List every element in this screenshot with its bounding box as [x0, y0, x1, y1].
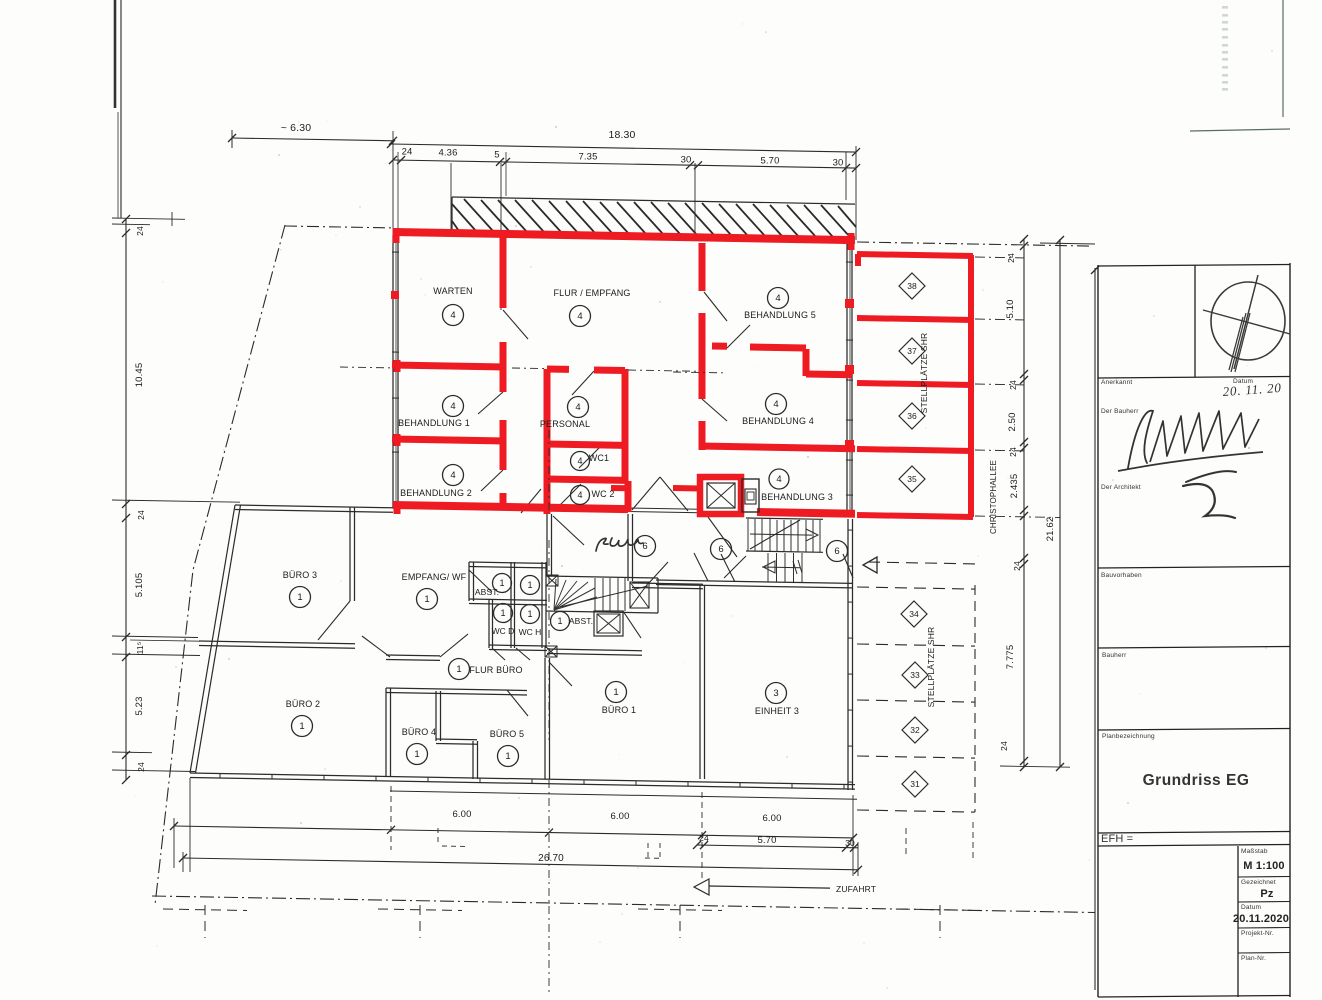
svg-text:1: 1: [424, 594, 429, 605]
svg-text:35: 35: [907, 474, 917, 484]
svg-text:BEHANDLUNG 3: BEHANDLUNG 3: [761, 492, 833, 502]
svg-text:Pz: Pz: [1260, 888, 1273, 900]
svg-text:1: 1: [505, 751, 510, 762]
svg-text:1: 1: [499, 578, 504, 588]
svg-text:2.435: 2.435: [1009, 474, 1020, 499]
svg-text:1: 1: [456, 664, 461, 675]
svg-text:2.50: 2.50: [1007, 412, 1018, 431]
svg-text:EMPFANG/ WF: EMPFANG/ WF: [402, 572, 467, 582]
svg-text:4: 4: [775, 293, 780, 304]
svg-text:Bauvorhaben: Bauvorhaben: [1101, 572, 1142, 579]
svg-text:24: 24: [699, 833, 709, 843]
svg-text:1: 1: [414, 749, 419, 760]
svg-text:BEHANDLUNG 2: BEHANDLUNG 2: [400, 488, 472, 498]
svg-text:30: 30: [681, 155, 692, 166]
svg-text:5.70: 5.70: [757, 835, 776, 846]
svg-text:BEHANDLUNG 1: BEHANDLUNG 1: [398, 418, 470, 428]
svg-text:STELLPLÄTZE SHR: STELLPLÄTZE SHR: [919, 333, 929, 414]
svg-text:26.70: 26.70: [538, 853, 564, 864]
svg-text:Anerkannt: Anerkannt: [1101, 379, 1132, 386]
svg-text:M 1:100: M 1:100: [1243, 860, 1284, 872]
svg-text:Der Architekt: Der Architekt: [1101, 484, 1141, 491]
svg-text:Maßstab: Maßstab: [1241, 848, 1268, 855]
svg-text:10.45: 10.45: [134, 363, 145, 388]
svg-text:4: 4: [776, 474, 781, 485]
svg-text:Projekt-Nr.: Projekt-Nr.: [1241, 930, 1274, 937]
svg-text:1: 1: [297, 592, 302, 603]
svg-text:38: 38: [907, 281, 917, 291]
svg-text:5.10: 5.10: [1005, 299, 1016, 318]
svg-text:PERSONAL: PERSONAL: [540, 419, 590, 429]
svg-text:5: 5: [494, 150, 499, 161]
svg-text:Grundriss EG: Grundriss EG: [1143, 772, 1250, 789]
svg-text:4: 4: [577, 456, 582, 466]
svg-text:4: 4: [577, 490, 582, 500]
svg-text:5.70: 5.70: [760, 156, 779, 167]
svg-text:STELLPLÄTZE SHR: STELLPLÄTZE SHR: [926, 627, 936, 708]
svg-text:30: 30: [845, 838, 855, 848]
svg-text:Planbezeichnung: Planbezeichnung: [1102, 733, 1155, 740]
svg-text:7.775: 7.775: [1005, 645, 1016, 670]
svg-text:Datum: Datum: [1241, 904, 1261, 911]
svg-text:BEHANDLUNG 4: BEHANDLUNG 4: [742, 416, 814, 426]
svg-text:Bauherr: Bauherr: [1102, 652, 1127, 659]
svg-text:WC D: WC D: [492, 626, 515, 636]
svg-text:11⁵: 11⁵: [135, 642, 145, 655]
svg-text:21.62: 21.62: [1045, 517, 1056, 542]
svg-text:5.23: 5.23: [134, 696, 145, 715]
svg-text:24: 24: [1006, 253, 1016, 263]
svg-text:32: 32: [910, 725, 920, 735]
svg-text:20.11.2020: 20.11.2020: [1233, 913, 1289, 925]
svg-text:24: 24: [1012, 561, 1022, 571]
svg-text:6.00: 6.00: [610, 811, 629, 822]
svg-text:WC 2: WC 2: [591, 489, 614, 499]
svg-text:4: 4: [450, 470, 455, 481]
svg-text:1: 1: [527, 609, 532, 619]
svg-text:4: 4: [450, 401, 455, 412]
svg-text:24: 24: [1008, 380, 1018, 390]
svg-text:ZUFAHRT: ZUFAHRT: [836, 884, 876, 894]
svg-text:37: 37: [907, 346, 917, 356]
svg-text:1: 1: [613, 687, 618, 698]
svg-text:FLUR BÜRO: FLUR BÜRO: [469, 665, 522, 675]
svg-text:24: 24: [402, 147, 413, 158]
svg-text:~ 6.30: ~ 6.30: [281, 122, 311, 134]
svg-text:ABST.: ABST.: [569, 616, 593, 626]
svg-text:1: 1: [557, 616, 562, 626]
svg-text:1: 1: [500, 608, 505, 618]
svg-text:Plan-Nr.: Plan-Nr.: [1241, 955, 1266, 962]
svg-text:24: 24: [135, 226, 145, 236]
svg-text:FLUR / EMPFANG: FLUR / EMPFANG: [553, 288, 630, 298]
svg-text:6.00: 6.00: [762, 813, 781, 824]
svg-text:34: 34: [909, 609, 919, 619]
svg-text:4: 4: [773, 399, 778, 410]
svg-text:4: 4: [450, 310, 455, 321]
svg-text:6: 6: [834, 546, 839, 557]
svg-text:30: 30: [833, 158, 844, 169]
svg-text:6.00: 6.00: [452, 809, 471, 820]
svg-text:7.35: 7.35: [578, 152, 597, 163]
svg-text:24: 24: [1008, 447, 1018, 457]
svg-text:33: 33: [910, 670, 920, 680]
svg-text:24: 24: [999, 741, 1009, 751]
svg-text:4: 4: [575, 402, 580, 413]
svg-text:BÜRO 5: BÜRO 5: [490, 729, 524, 739]
svg-text:18.30: 18.30: [608, 129, 635, 141]
svg-text:BÜRO 3: BÜRO 3: [283, 570, 317, 580]
svg-text:EINHEIT 3: EINHEIT 3: [755, 706, 799, 716]
svg-text:BEHANDLUNG 5: BEHANDLUNG 5: [744, 310, 816, 320]
svg-text:3: 3: [773, 688, 778, 699]
svg-text:CHRISTOPHALLEE: CHRISTOPHALLEE: [989, 460, 998, 534]
svg-text:BÜRO 2: BÜRO 2: [286, 699, 320, 709]
svg-text:BÜRO 4: BÜRO 4: [402, 727, 436, 737]
svg-text:5.105: 5.105: [134, 573, 145, 598]
svg-text:36: 36: [907, 411, 917, 421]
svg-text:WC H: WC H: [519, 627, 542, 637]
svg-text:Der Bauherr: Der Bauherr: [1101, 408, 1139, 415]
svg-text:Gezeichnet: Gezeichnet: [1241, 879, 1276, 886]
svg-text:BÜRO 1: BÜRO 1: [602, 705, 636, 715]
svg-text:4.36: 4.36: [438, 148, 457, 159]
svg-text:24: 24: [136, 510, 146, 520]
svg-text:1: 1: [527, 580, 532, 590]
svg-text:4: 4: [577, 311, 582, 322]
svg-text:WC1: WC1: [589, 453, 609, 463]
svg-text:6: 6: [718, 544, 723, 555]
svg-text:WARTEN: WARTEN: [433, 286, 472, 296]
svg-text:ABST.: ABST.: [475, 587, 499, 597]
svg-text:EFH =: EFH =: [1101, 833, 1133, 845]
svg-text:31: 31: [910, 779, 920, 789]
svg-text:1: 1: [299, 721, 304, 732]
